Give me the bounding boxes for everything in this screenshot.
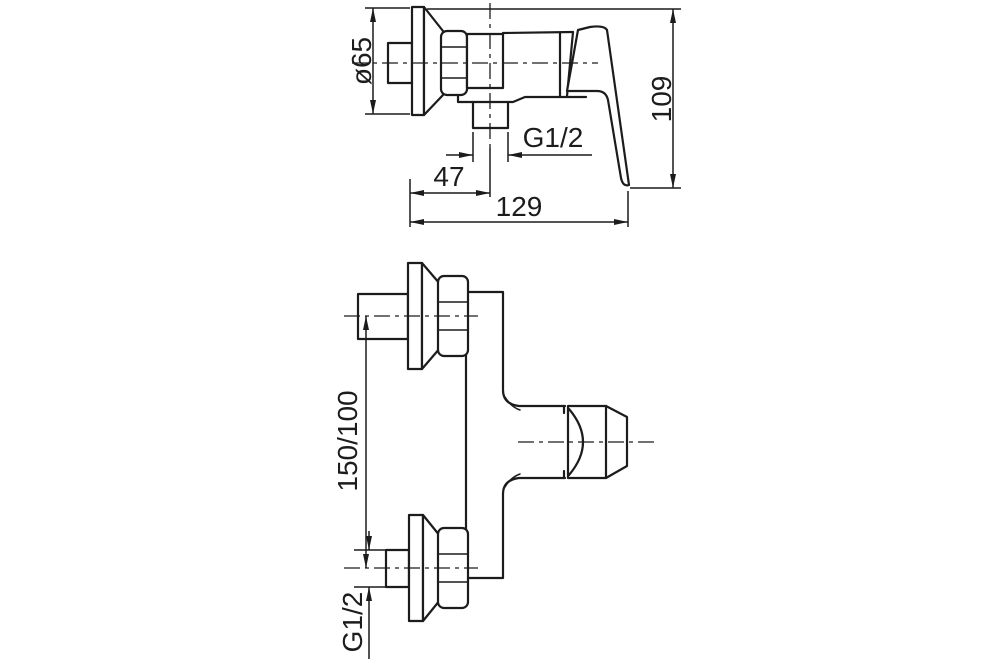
- arrowhead-left: [410, 190, 424, 196]
- fillet-runout-lines: [505, 397, 520, 487]
- arrowhead-down: [370, 100, 376, 114]
- arrowhead-right: [476, 190, 490, 196]
- escutcheon-plate: [412, 7, 424, 115]
- arrowhead-left: [410, 219, 424, 225]
- body-plate: [466, 292, 565, 578]
- dim-label-offset: 47: [433, 161, 464, 192]
- arrowhead-right: [459, 152, 473, 158]
- dim-label-spacing: 150/100: [332, 390, 363, 491]
- dim-label-width: 129: [496, 191, 543, 222]
- dimension-inlet-thread: G1/2: [337, 531, 386, 659]
- technical-drawing-page: ø65 G1/2 47 129 109: [0, 0, 1000, 667]
- dim-label-diameter: ø65: [346, 37, 377, 85]
- dimension-width-129: 129: [410, 191, 628, 227]
- arrowhead-up: [370, 8, 376, 22]
- dim-label-outlet-thread: G1/2: [523, 122, 584, 153]
- body-top-edge: [503, 32, 573, 33]
- arrowhead-up: [670, 9, 676, 23]
- dim-label-height: 109: [646, 76, 677, 123]
- valve-body-block: [467, 34, 503, 88]
- arrowhead-left: [508, 152, 522, 158]
- lever-handle: [567, 26, 629, 185]
- dimension-spacing-150-100: 150/100: [332, 316, 369, 568]
- arrowhead-down: [670, 174, 676, 188]
- arrowhead-down: [363, 554, 369, 568]
- shower-mixer-technical-drawing: ø65 G1/2 47 129 109: [0, 0, 1000, 667]
- dimension-outlet-thread: G1/2: [446, 122, 592, 162]
- side-view: ø65 G1/2 47 129 109: [346, 3, 681, 227]
- dimension-offset-47: 47: [410, 161, 490, 227]
- arrowhead-right: [614, 219, 628, 225]
- front-view: 150/100 G1/2: [332, 263, 658, 659]
- dim-label-inlet-thread: G1/2: [337, 592, 368, 653]
- arrowhead-down: [366, 536, 372, 550]
